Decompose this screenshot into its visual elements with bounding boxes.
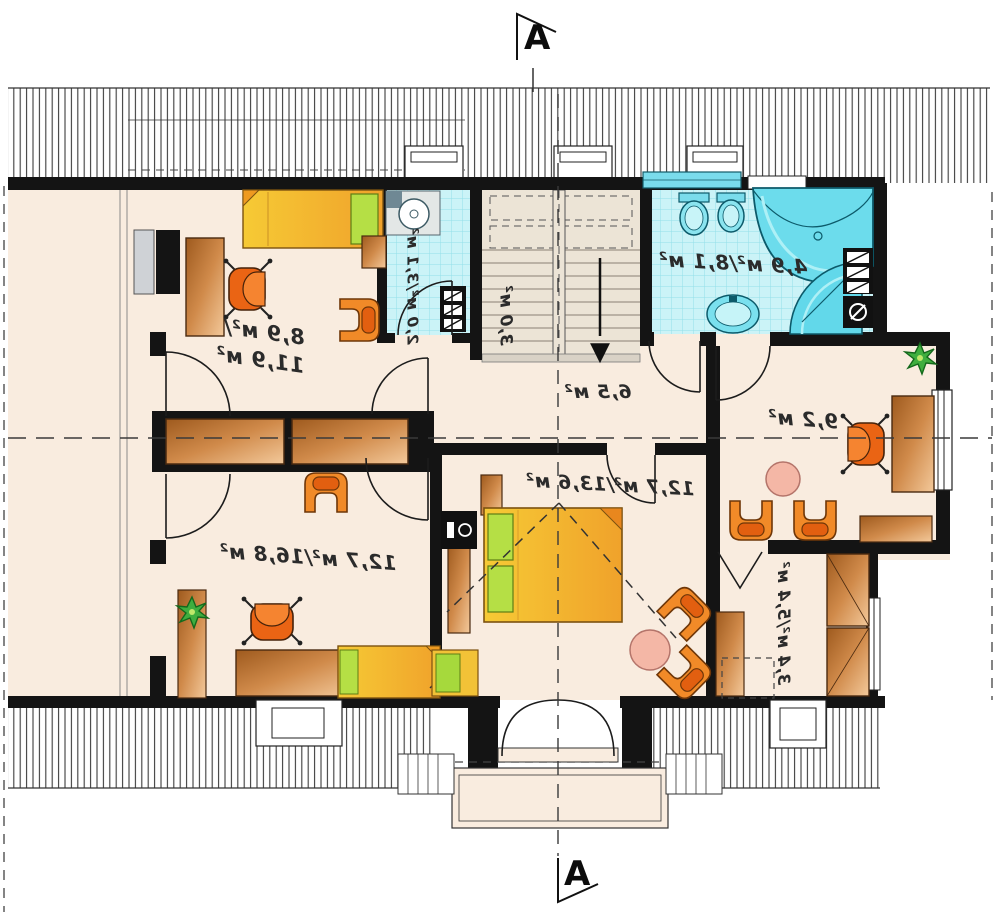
desk-icon xyxy=(236,650,354,696)
bed-icon xyxy=(338,646,440,698)
french-door-icon xyxy=(498,700,618,762)
roof-hatch-top xyxy=(8,88,990,183)
desk-icon xyxy=(892,396,934,492)
ventilation-shaft-icon xyxy=(843,248,873,328)
sideboard-icon xyxy=(860,516,932,542)
room-area-label-wc: 2,0 м²/3,1 м² xyxy=(402,226,423,346)
wardrobe-icon xyxy=(827,554,869,696)
stairs-down-arrow-icon: ▼ xyxy=(590,337,610,367)
nightstand-icon xyxy=(362,236,386,268)
coffee-table-icon xyxy=(766,462,800,496)
cabinet-icon xyxy=(716,612,744,696)
section-marker-bottom: A xyxy=(564,854,590,894)
dresser-icon xyxy=(448,543,470,633)
cabinet-icon xyxy=(432,650,478,696)
floor-plan: ▼ xyxy=(0,0,1000,916)
washbasin-icon xyxy=(707,295,759,333)
balcony xyxy=(398,754,722,828)
tv-unit-icon xyxy=(441,511,477,549)
room-area-label-wardrobe: 3,4 м²/5,4 м² xyxy=(772,565,794,685)
room-area-label-hall: 6,5 м² xyxy=(548,380,648,406)
bidet-icon xyxy=(717,193,745,232)
chimney-panel xyxy=(134,230,154,294)
radiator-icon xyxy=(440,286,466,332)
floor-plan-drawing: ▼ xyxy=(0,0,1000,916)
coffee-table-icon xyxy=(630,630,670,670)
double-bed-icon xyxy=(484,508,622,622)
toilet-icon xyxy=(679,193,709,235)
room-area-label-staircase: 3,0 м² xyxy=(494,265,517,365)
section-marker-top: A xyxy=(524,18,550,58)
